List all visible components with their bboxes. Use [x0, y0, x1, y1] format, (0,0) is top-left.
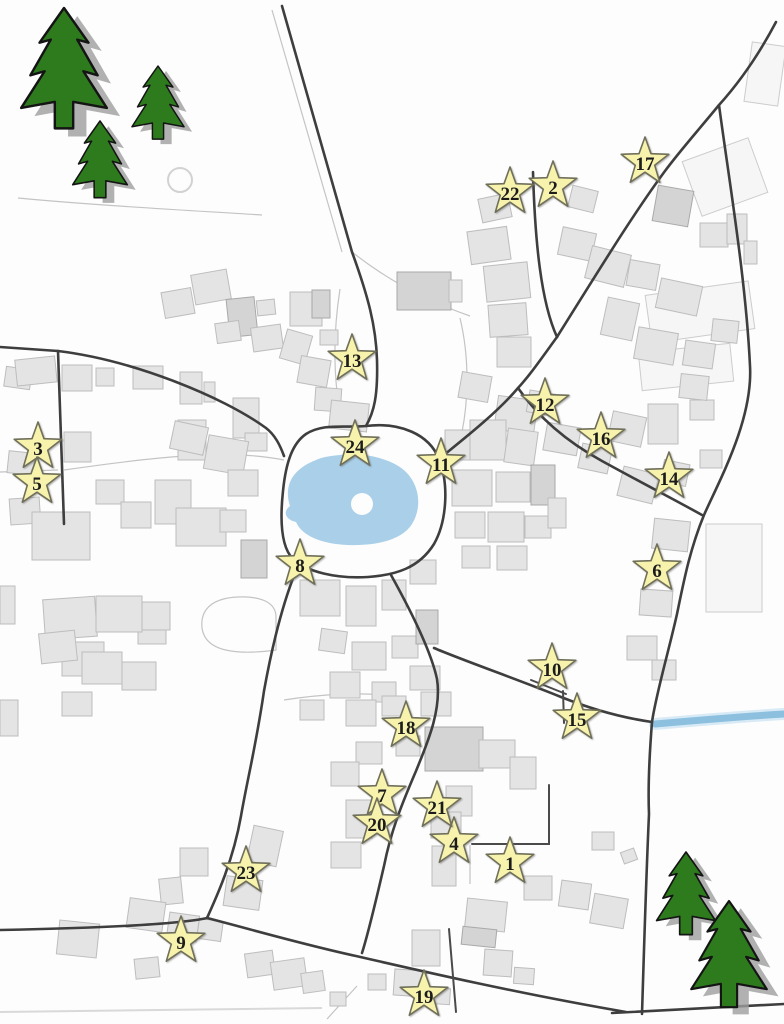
building: [312, 290, 330, 318]
building: [452, 470, 492, 506]
star-number: 20: [368, 815, 387, 836]
building: [228, 470, 258, 496]
parcel-line: [18, 198, 262, 215]
building: [548, 498, 566, 528]
star-number: 21: [428, 798, 447, 819]
building: [461, 926, 497, 947]
building: [392, 636, 418, 658]
building: [682, 340, 715, 369]
star-number: 1: [505, 854, 515, 875]
building: [96, 368, 114, 386]
parcel-line: [202, 597, 276, 652]
star-number: 4: [449, 834, 459, 855]
star-number: 15: [568, 710, 587, 731]
star-number: 10: [543, 660, 562, 681]
round-feature-outline: [168, 168, 192, 192]
building: [412, 930, 440, 966]
building: [32, 512, 90, 560]
parcel-line: [64, 455, 284, 470]
stream-layer: [655, 714, 784, 724]
building: [241, 540, 267, 578]
pine-tree-icon: [132, 66, 192, 144]
building: [600, 297, 639, 341]
village-map-canvas: 123456789101112131415161718192021222324: [0, 0, 784, 1024]
building: [233, 398, 259, 438]
building: [543, 422, 581, 455]
building: [700, 450, 722, 468]
star-number: 18: [397, 718, 416, 739]
building: [300, 580, 340, 616]
star-number: 24: [346, 437, 366, 458]
building: [744, 241, 757, 264]
building: [627, 636, 657, 660]
building: [488, 303, 528, 338]
star-number: 6: [652, 561, 662, 582]
building: [449, 280, 462, 302]
building: [497, 546, 527, 570]
star-number: 8: [295, 556, 305, 577]
building: [62, 692, 92, 716]
building: [455, 512, 485, 538]
building: [39, 630, 78, 664]
building: [297, 356, 331, 388]
building: [496, 472, 530, 502]
building: [215, 320, 242, 343]
building: [483, 949, 513, 977]
building: [300, 700, 324, 720]
building: [634, 327, 679, 365]
building: [346, 700, 376, 726]
building: [711, 319, 739, 344]
building: [0, 700, 18, 736]
building: [250, 324, 283, 352]
building: [15, 356, 57, 386]
field-parcel: [706, 524, 762, 612]
road: [0, 347, 58, 351]
building: [220, 510, 246, 532]
building: [330, 672, 360, 698]
building: [56, 920, 99, 958]
star-marker-15[interactable]: 15: [553, 693, 601, 738]
star-number: 5: [32, 474, 42, 495]
star-number: 3: [33, 439, 43, 460]
edge-road-line: [0, 1008, 322, 1012]
building: [121, 502, 151, 528]
building: [483, 262, 531, 302]
pine-tree-icon: [21, 8, 120, 137]
pond-island: [351, 493, 373, 515]
building: [301, 971, 326, 994]
building: [590, 893, 629, 928]
advent-map: 123456789101112131415161718192021222324: [0, 0, 784, 1024]
building: [458, 372, 492, 403]
building: [504, 428, 538, 466]
building: [191, 269, 232, 305]
building: [134, 957, 160, 979]
building: [690, 400, 714, 420]
building: [320, 330, 338, 345]
building: [700, 223, 728, 247]
building: [524, 876, 552, 900]
building: [256, 299, 275, 316]
road-small: [472, 785, 549, 844]
building: [352, 642, 386, 670]
star-number: 14: [660, 469, 680, 490]
star-marker-8[interactable]: 8: [276, 539, 324, 584]
building: [425, 727, 483, 771]
building: [331, 762, 359, 786]
building: [247, 825, 284, 866]
star-number: 22: [501, 184, 520, 205]
field-parcel: [744, 42, 784, 106]
building: [96, 480, 124, 504]
building: [513, 967, 534, 984]
star-number: 11: [432, 455, 450, 476]
building: [161, 288, 195, 319]
building: [497, 337, 531, 367]
star-number: 16: [592, 429, 611, 450]
building: [679, 374, 709, 401]
building: [648, 404, 678, 444]
building: [331, 842, 361, 868]
star-number: 13: [343, 351, 362, 372]
road: [612, 1004, 784, 1013]
building: [462, 546, 490, 568]
building: [319, 628, 348, 653]
buildings-layer: [0, 185, 757, 1006]
star-number: 9: [176, 933, 186, 954]
building: [126, 898, 166, 933]
building: [368, 974, 386, 990]
building: [64, 432, 91, 462]
star-number: 19: [415, 987, 434, 1008]
building: [203, 435, 248, 475]
building: [122, 662, 156, 690]
building: [176, 508, 226, 546]
parcel-line: [272, 10, 342, 252]
building: [620, 848, 637, 864]
building: [467, 226, 511, 264]
building: [568, 185, 599, 213]
building: [180, 848, 208, 876]
building: [356, 742, 382, 764]
building: [330, 992, 346, 1006]
star-number: 17: [636, 154, 656, 175]
building: [639, 589, 673, 617]
star-number: 12: [536, 395, 555, 416]
building: [346, 586, 376, 626]
building: [525, 516, 551, 538]
building: [416, 610, 438, 644]
building: [652, 185, 694, 227]
star-number: 23: [237, 863, 256, 884]
building: [397, 272, 451, 310]
building: [470, 420, 506, 460]
pond-layer: [286, 454, 419, 545]
building: [96, 596, 142, 632]
star-number: 2: [548, 178, 558, 199]
building: [510, 757, 536, 789]
building: [142, 602, 170, 630]
building: [159, 877, 184, 905]
building: [82, 652, 122, 684]
building: [62, 365, 92, 391]
building: [626, 260, 660, 291]
building: [488, 512, 524, 542]
building: [592, 832, 614, 850]
building: [558, 880, 591, 910]
building: [0, 586, 15, 624]
